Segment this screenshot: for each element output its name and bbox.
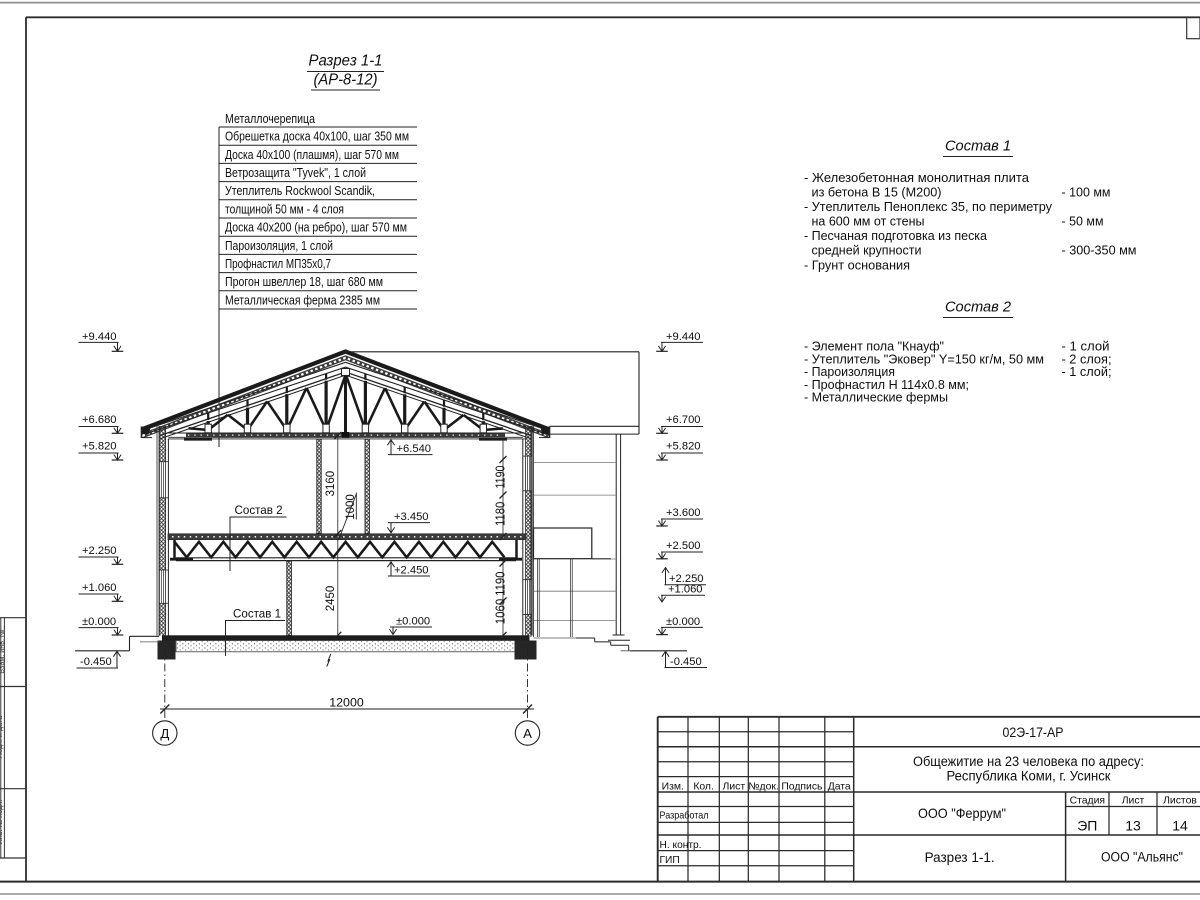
svg-text:Листов: Листов <box>1163 795 1197 806</box>
svg-text:Лист: Лист <box>1122 795 1145 806</box>
svg-text:№док.: №док. <box>748 781 778 792</box>
svg-text:- 100 мм: - 100 мм <box>1062 185 1111 200</box>
svg-text:Обрешетка доска 40х100, шаг 35: Обрешетка доска 40х100, шаг 350 мм <box>225 129 409 144</box>
svg-text:- Песчаная подготовка из песка: - Песчаная подготовка из песка <box>804 228 988 243</box>
svg-text:Пароизоляция, 1 слой: Пароизоляция, 1 слой <box>225 238 333 253</box>
svg-text:ООО "Феррум": ООО "Феррум" <box>918 805 1006 821</box>
svg-text:+6.540: +6.540 <box>397 443 432 455</box>
svg-text:+5.820: +5.820 <box>666 441 701 453</box>
svg-text:-0.450: -0.450 <box>80 656 112 668</box>
svg-text:+2.250: +2.250 <box>82 545 117 557</box>
svg-text:Подпись: Подпись <box>781 781 822 792</box>
svg-text:на 600 мм от стены: на 600 мм от стены <box>812 214 925 229</box>
svg-text:Доска 40х100 (плашмя), шаг 570: Доска 40х100 (плашмя), шаг 570 мм <box>225 147 399 162</box>
svg-text:+6.680: +6.680 <box>82 414 117 426</box>
svg-text:Доска 40х200 (на ребро), шаг 5: Доска 40х200 (на ребро), шаг 570 мм <box>225 220 407 235</box>
svg-text:- Утеплитель Пеноплекс 35, по: - Утеплитель Пеноплекс 35, по периметру <box>804 199 1052 214</box>
svg-text:Утеплитель Rockwool Scandik,: Утеплитель Rockwool Scandik, <box>225 183 375 198</box>
svg-text:средней крупности: средней крупности <box>812 243 922 258</box>
svg-text:Разрез 1-1.: Разрез 1-1. <box>925 849 995 865</box>
svg-text:1180: 1180 <box>492 502 507 526</box>
svg-text:ООО "Альянс": ООО "Альянс" <box>1101 850 1183 865</box>
svg-text:-0.450: -0.450 <box>670 656 702 668</box>
svg-text:Состав 2: Состав 2 <box>235 504 283 517</box>
svg-text:Стадия: Стадия <box>1070 795 1105 806</box>
svg-text:Прогон швеллер 18, шаг 680 мм: Прогон швеллер 18, шаг 680 мм <box>225 274 383 289</box>
svg-text:Общежитие на 23 человека по ад: Общежитие на 23 человека по адресу: <box>913 754 1144 769</box>
svg-text:- 300-350 мм: - 300-350 мм <box>1062 243 1137 258</box>
svg-text:±0.000: ±0.000 <box>82 616 116 628</box>
svg-text:ЭП: ЭП <box>1077 818 1097 834</box>
svg-text:Профнастил МП35х0,7: Профнастил МП35х0,7 <box>225 256 331 271</box>
svg-text:Разрез 1-1: Разрез 1-1 <box>309 53 383 70</box>
svg-text:2450: 2450 <box>325 586 337 612</box>
svg-text:- 50 мм: - 50 мм <box>1062 214 1104 229</box>
svg-text:Н. контр.: Н. контр. <box>660 840 702 851</box>
svg-text:14: 14 <box>1172 818 1188 834</box>
svg-text:Состав 2: Состав 2 <box>945 299 1012 316</box>
svg-text:3160: 3160 <box>325 471 337 497</box>
svg-text:+3.600: +3.600 <box>666 507 701 519</box>
svg-text:Состав 1: Состав 1 <box>945 138 1011 155</box>
svg-text:+9.440: +9.440 <box>666 331 701 343</box>
svg-text:12000: 12000 <box>329 696 364 710</box>
svg-text:+3.450: +3.450 <box>394 511 429 523</box>
svg-text:+9.440: +9.440 <box>82 331 117 343</box>
svg-text:13: 13 <box>1125 818 1141 834</box>
svg-text:- Железобетонная монолитная п: - Железобетонная монолитная плита <box>804 170 1030 185</box>
svg-text:Металлочерепица: Металлочерепица <box>225 111 316 126</box>
svg-text:(АР-8-12): (АР-8-12) <box>314 72 378 89</box>
svg-text:Ветрозащита "Tyvek", 1 слой: Ветрозащита "Tyvek", 1 слой <box>225 165 366 180</box>
svg-text:+6.700: +6.700 <box>666 414 701 426</box>
svg-text:±0.000: ±0.000 <box>396 616 430 628</box>
svg-text:Д: Д <box>160 726 169 741</box>
svg-text:из бетона В 15 (М200): из бетона В 15 (М200) <box>812 185 942 200</box>
svg-text:+2.450: +2.450 <box>394 565 429 577</box>
svg-text:Инв. № подл.: Инв. № подл. <box>0 800 4 845</box>
svg-text:1190: 1190 <box>492 466 507 489</box>
svg-text:ГИП: ГИП <box>660 855 680 866</box>
svg-text:Изм.: Изм. <box>662 781 684 792</box>
svg-text:Металлическая ферма 2385 мм: Металлическая ферма 2385 мм <box>225 292 380 307</box>
svg-text:1060: 1060 <box>492 599 507 625</box>
svg-text:толщиной 50 мм - 4 слоя: толщиной 50 мм - 4 слоя <box>225 201 344 216</box>
svg-text:Состав 1: Состав 1 <box>233 608 281 621</box>
svg-text:Подп. и дата: Подп. и дата <box>0 716 4 758</box>
svg-text:+1.060: +1.060 <box>82 582 117 594</box>
svg-text:Кол.: Кол. <box>693 781 714 792</box>
svg-text:- Грунт основания: - Грунт основания <box>804 258 910 273</box>
svg-text:02Э-17-АР: 02Э-17-АР <box>1003 725 1064 740</box>
svg-text:А: А <box>523 726 532 741</box>
svg-text:Лист: Лист <box>723 781 746 792</box>
svg-text:+5.820: +5.820 <box>82 441 117 453</box>
svg-text:+2.500: +2.500 <box>666 540 701 552</box>
svg-text:1190: 1190 <box>492 572 507 596</box>
svg-text:Взам. инв. №: Взам. инв. № <box>0 629 6 674</box>
svg-text:Разработал: Разработал <box>660 810 709 822</box>
svg-text:Дата: Дата <box>828 781 851 792</box>
svg-text:±0.000: ±0.000 <box>666 616 700 628</box>
svg-text:- Металлические фермы: - Металлические фермы <box>804 390 948 405</box>
svg-text:+1.060: +1.060 <box>668 584 703 596</box>
svg-text:- 1 слой;: - 1 слой; <box>1062 364 1112 379</box>
svg-text:Республика Коми, г. Усинск: Республика Коми, г. Усинск <box>947 769 1111 784</box>
